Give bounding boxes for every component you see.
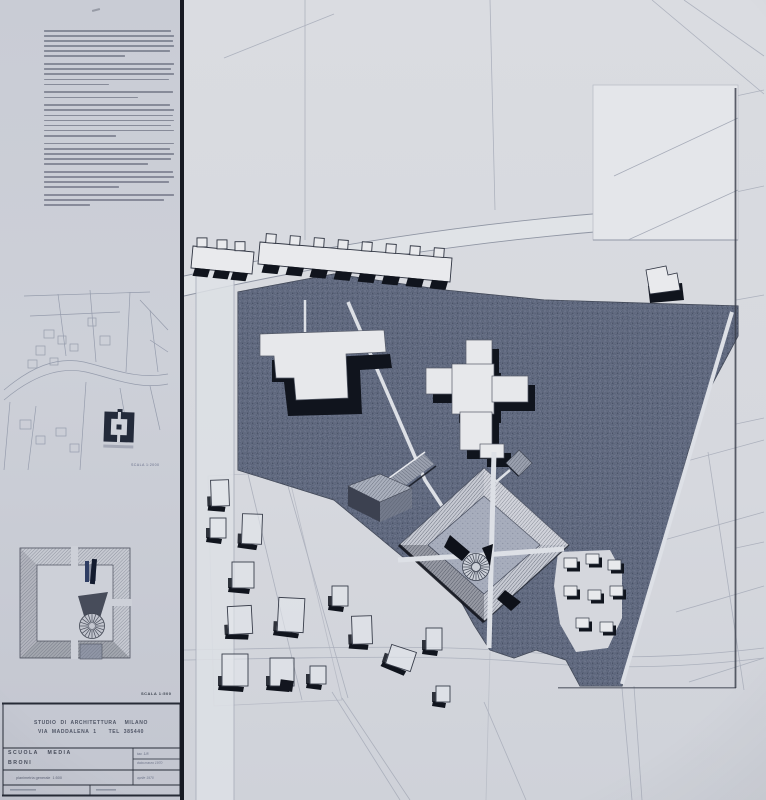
project-location: BRONI <box>8 761 32 767</box>
typewritten-notes <box>44 30 174 212</box>
architectural-drawing-board: SCALA 1:2000 SCALA 1:500 STUDIO DI ARCHI… <box>0 0 766 800</box>
date-field: data marzo 1970 <box>137 762 162 766</box>
approval-date: aprile 1970 <box>137 777 154 781</box>
scale-label-2000: SCALA 1:2000 <box>131 463 159 467</box>
photo-edge-bottom <box>558 687 736 689</box>
sheet-number: tav. 1/8 <box>137 752 149 756</box>
location-map <box>4 290 168 470</box>
blue-marker <box>85 561 89 582</box>
project-title: SCUOLA MEDIA <box>8 751 72 757</box>
drawing-title: planimetria generale 1:500 <box>16 776 62 780</box>
map-school-footprint <box>103 408 134 448</box>
photo-edge-right <box>735 88 737 688</box>
scale-label-500: SCALA 1:500 <box>141 692 171 697</box>
date-cell-mark <box>96 789 116 791</box>
dark-house <box>279 679 293 692</box>
site-plan-photo <box>184 0 766 800</box>
studio-address: VIA MADDALENA 1 TEL 385440 <box>4 730 178 736</box>
signature-cell-mark <box>10 789 36 791</box>
studio-name: STUDIO DI ARCHITETTURA MILANO <box>4 721 178 727</box>
pasted-survey-sheet <box>593 85 738 240</box>
axon-plan-drawing <box>20 546 132 659</box>
panel-divider-line <box>180 0 184 800</box>
